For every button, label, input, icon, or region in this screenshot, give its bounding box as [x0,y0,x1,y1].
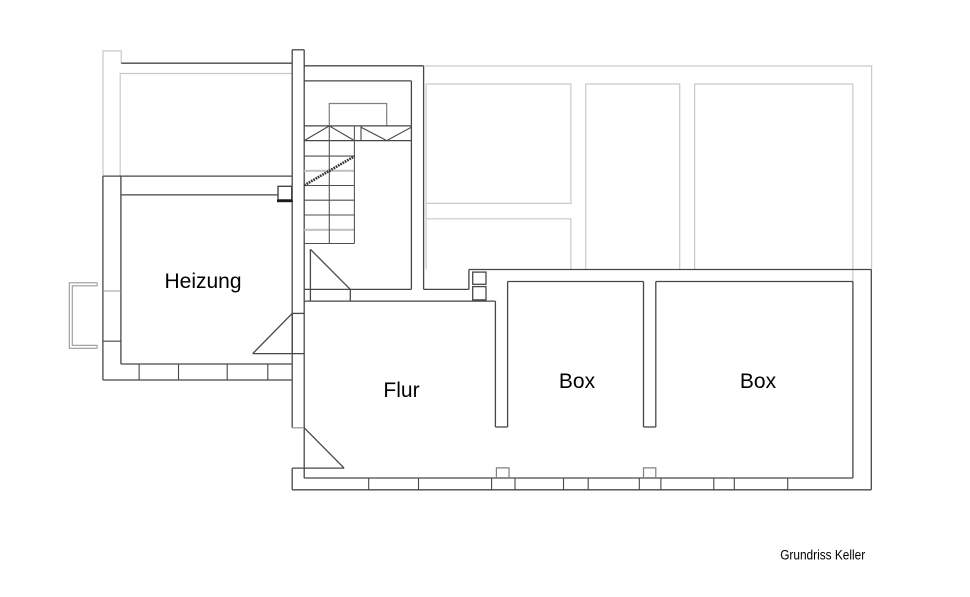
svg-text:Flur: Flur [383,379,419,402]
svg-text:Heizung: Heizung [164,270,241,293]
svg-text:Box: Box [559,370,596,393]
svg-text:Grundriss Keller: Grundriss Keller [780,548,865,563]
svg-text:Box: Box [740,370,777,393]
